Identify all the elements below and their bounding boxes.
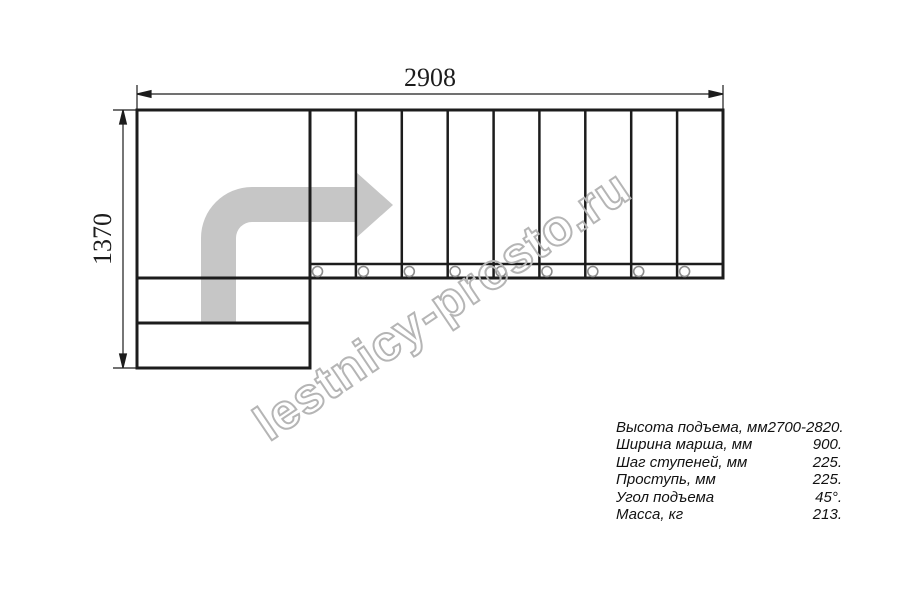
spec-row: Ширина марша, мм 900. <box>616 436 842 453</box>
spec-label: Масса, кг <box>616 506 683 523</box>
baluster-circle <box>313 267 323 277</box>
spec-table: Высота подъема, мм 2700-2820. Ширина мар… <box>616 419 842 523</box>
dimension-left: 1370 <box>88 110 136 368</box>
baluster-circle <box>358 267 368 277</box>
dimension-left-label: 1370 <box>88 213 117 265</box>
dimension-arrow-right-icon <box>709 91 723 98</box>
spec-row: Высота подъема, мм 2700-2820. <box>616 419 842 436</box>
baluster-circle <box>588 267 598 277</box>
spec-row: Проступь, мм 225. <box>616 471 842 488</box>
spec-label: Высота подъема, мм <box>616 419 768 436</box>
direction-arrow-icon <box>201 172 393 324</box>
spec-value: 900. <box>813 436 842 453</box>
spec-label: Проступь, мм <box>616 471 716 488</box>
dimension-top: 2908 <box>137 63 723 109</box>
staircase-drawing-page: 2908 1370 lestnicy-prosto.ru Высота подъ… <box>0 0 900 600</box>
baluster-circles <box>313 267 690 277</box>
spec-label: Ширина марша, мм <box>616 436 752 453</box>
dimension-arrow-left-icon <box>137 91 151 98</box>
spec-value: 213. <box>813 506 842 523</box>
dimension-top-label: 2908 <box>404 63 456 92</box>
baluster-circle <box>404 267 414 277</box>
spec-row: Масса, кг 213. <box>616 506 842 523</box>
dimension-arrow-down-icon <box>120 354 127 368</box>
bottom-step-2-rect <box>137 323 310 368</box>
baluster-circle <box>542 267 552 277</box>
baluster-circle <box>450 267 460 277</box>
spec-value: 45°. <box>815 489 842 506</box>
spec-value: 225. <box>813 471 842 488</box>
baluster-circle <box>634 267 644 277</box>
baluster-circle <box>496 267 506 277</box>
spec-row: Угол подъема 45°. <box>616 489 842 506</box>
spec-value: 2700-2820. <box>768 419 844 436</box>
spec-label: Угол подъема <box>616 489 714 506</box>
spec-row: Шаг ступеней, мм 225. <box>616 454 842 471</box>
baluster-circle <box>680 267 690 277</box>
spec-value: 225. <box>813 454 842 471</box>
dimension-arrow-up-icon <box>120 110 127 124</box>
top-flight-step-lines <box>356 110 677 278</box>
spec-label: Шаг ступеней, мм <box>616 454 747 471</box>
